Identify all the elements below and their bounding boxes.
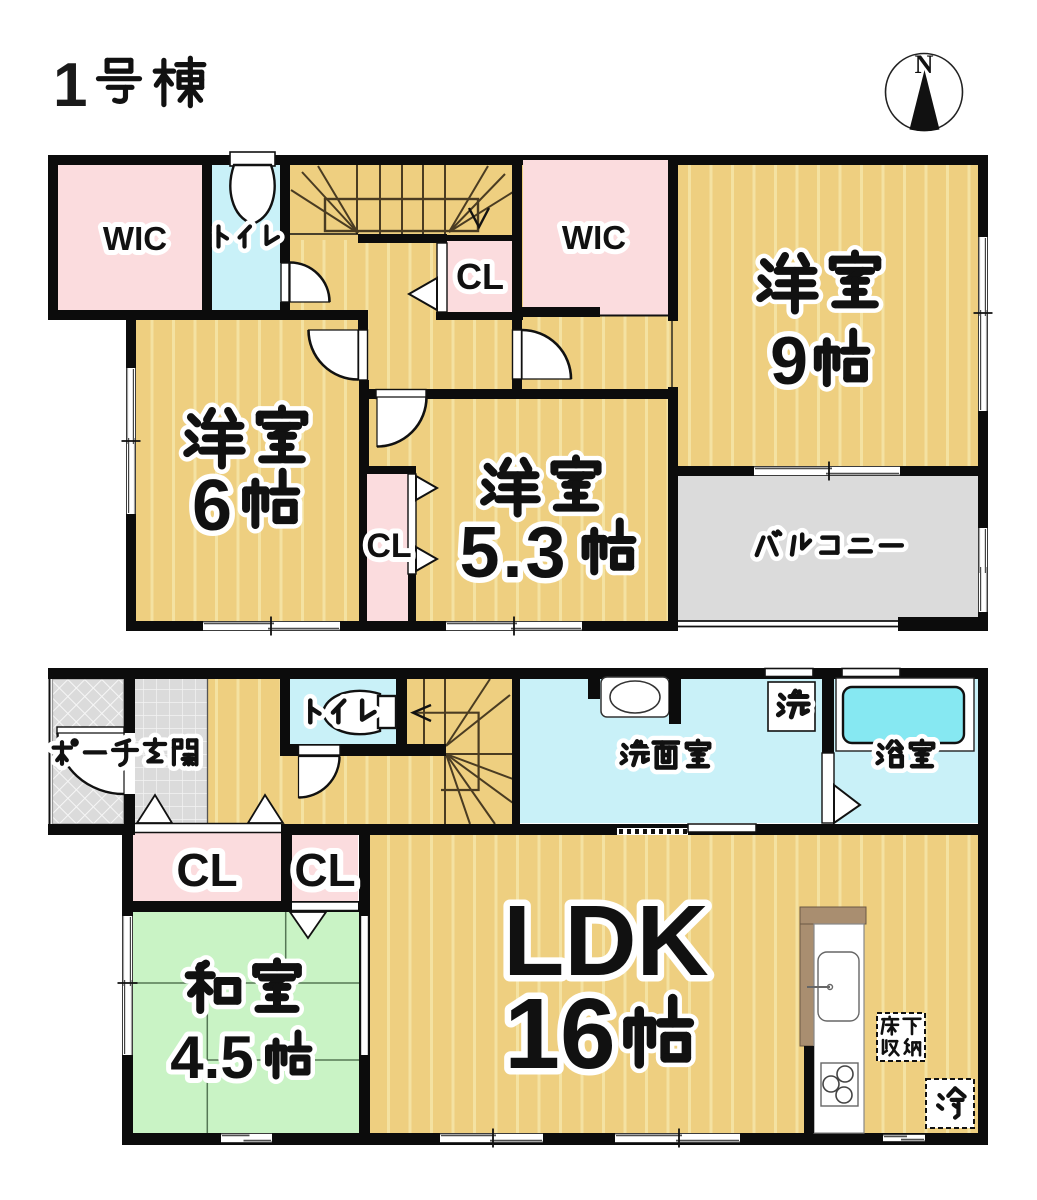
svg-text:CL: CL <box>176 844 237 896</box>
svg-text:CL: CL <box>366 527 411 565</box>
svg-text:WIC: WIC <box>562 219 626 256</box>
svg-text:CL: CL <box>456 256 504 297</box>
svg-text:9: 9 <box>770 323 808 399</box>
svg-text:WIC: WIC <box>103 220 167 257</box>
svg-text:6: 6 <box>192 466 232 546</box>
svg-text:4.5: 4.5 <box>170 1024 253 1091</box>
svg-text:5.3: 5.3 <box>459 513 568 593</box>
svg-text:16: 16 <box>504 978 615 1090</box>
svg-text:1: 1 <box>53 51 87 120</box>
svg-text:CL: CL <box>294 844 355 896</box>
